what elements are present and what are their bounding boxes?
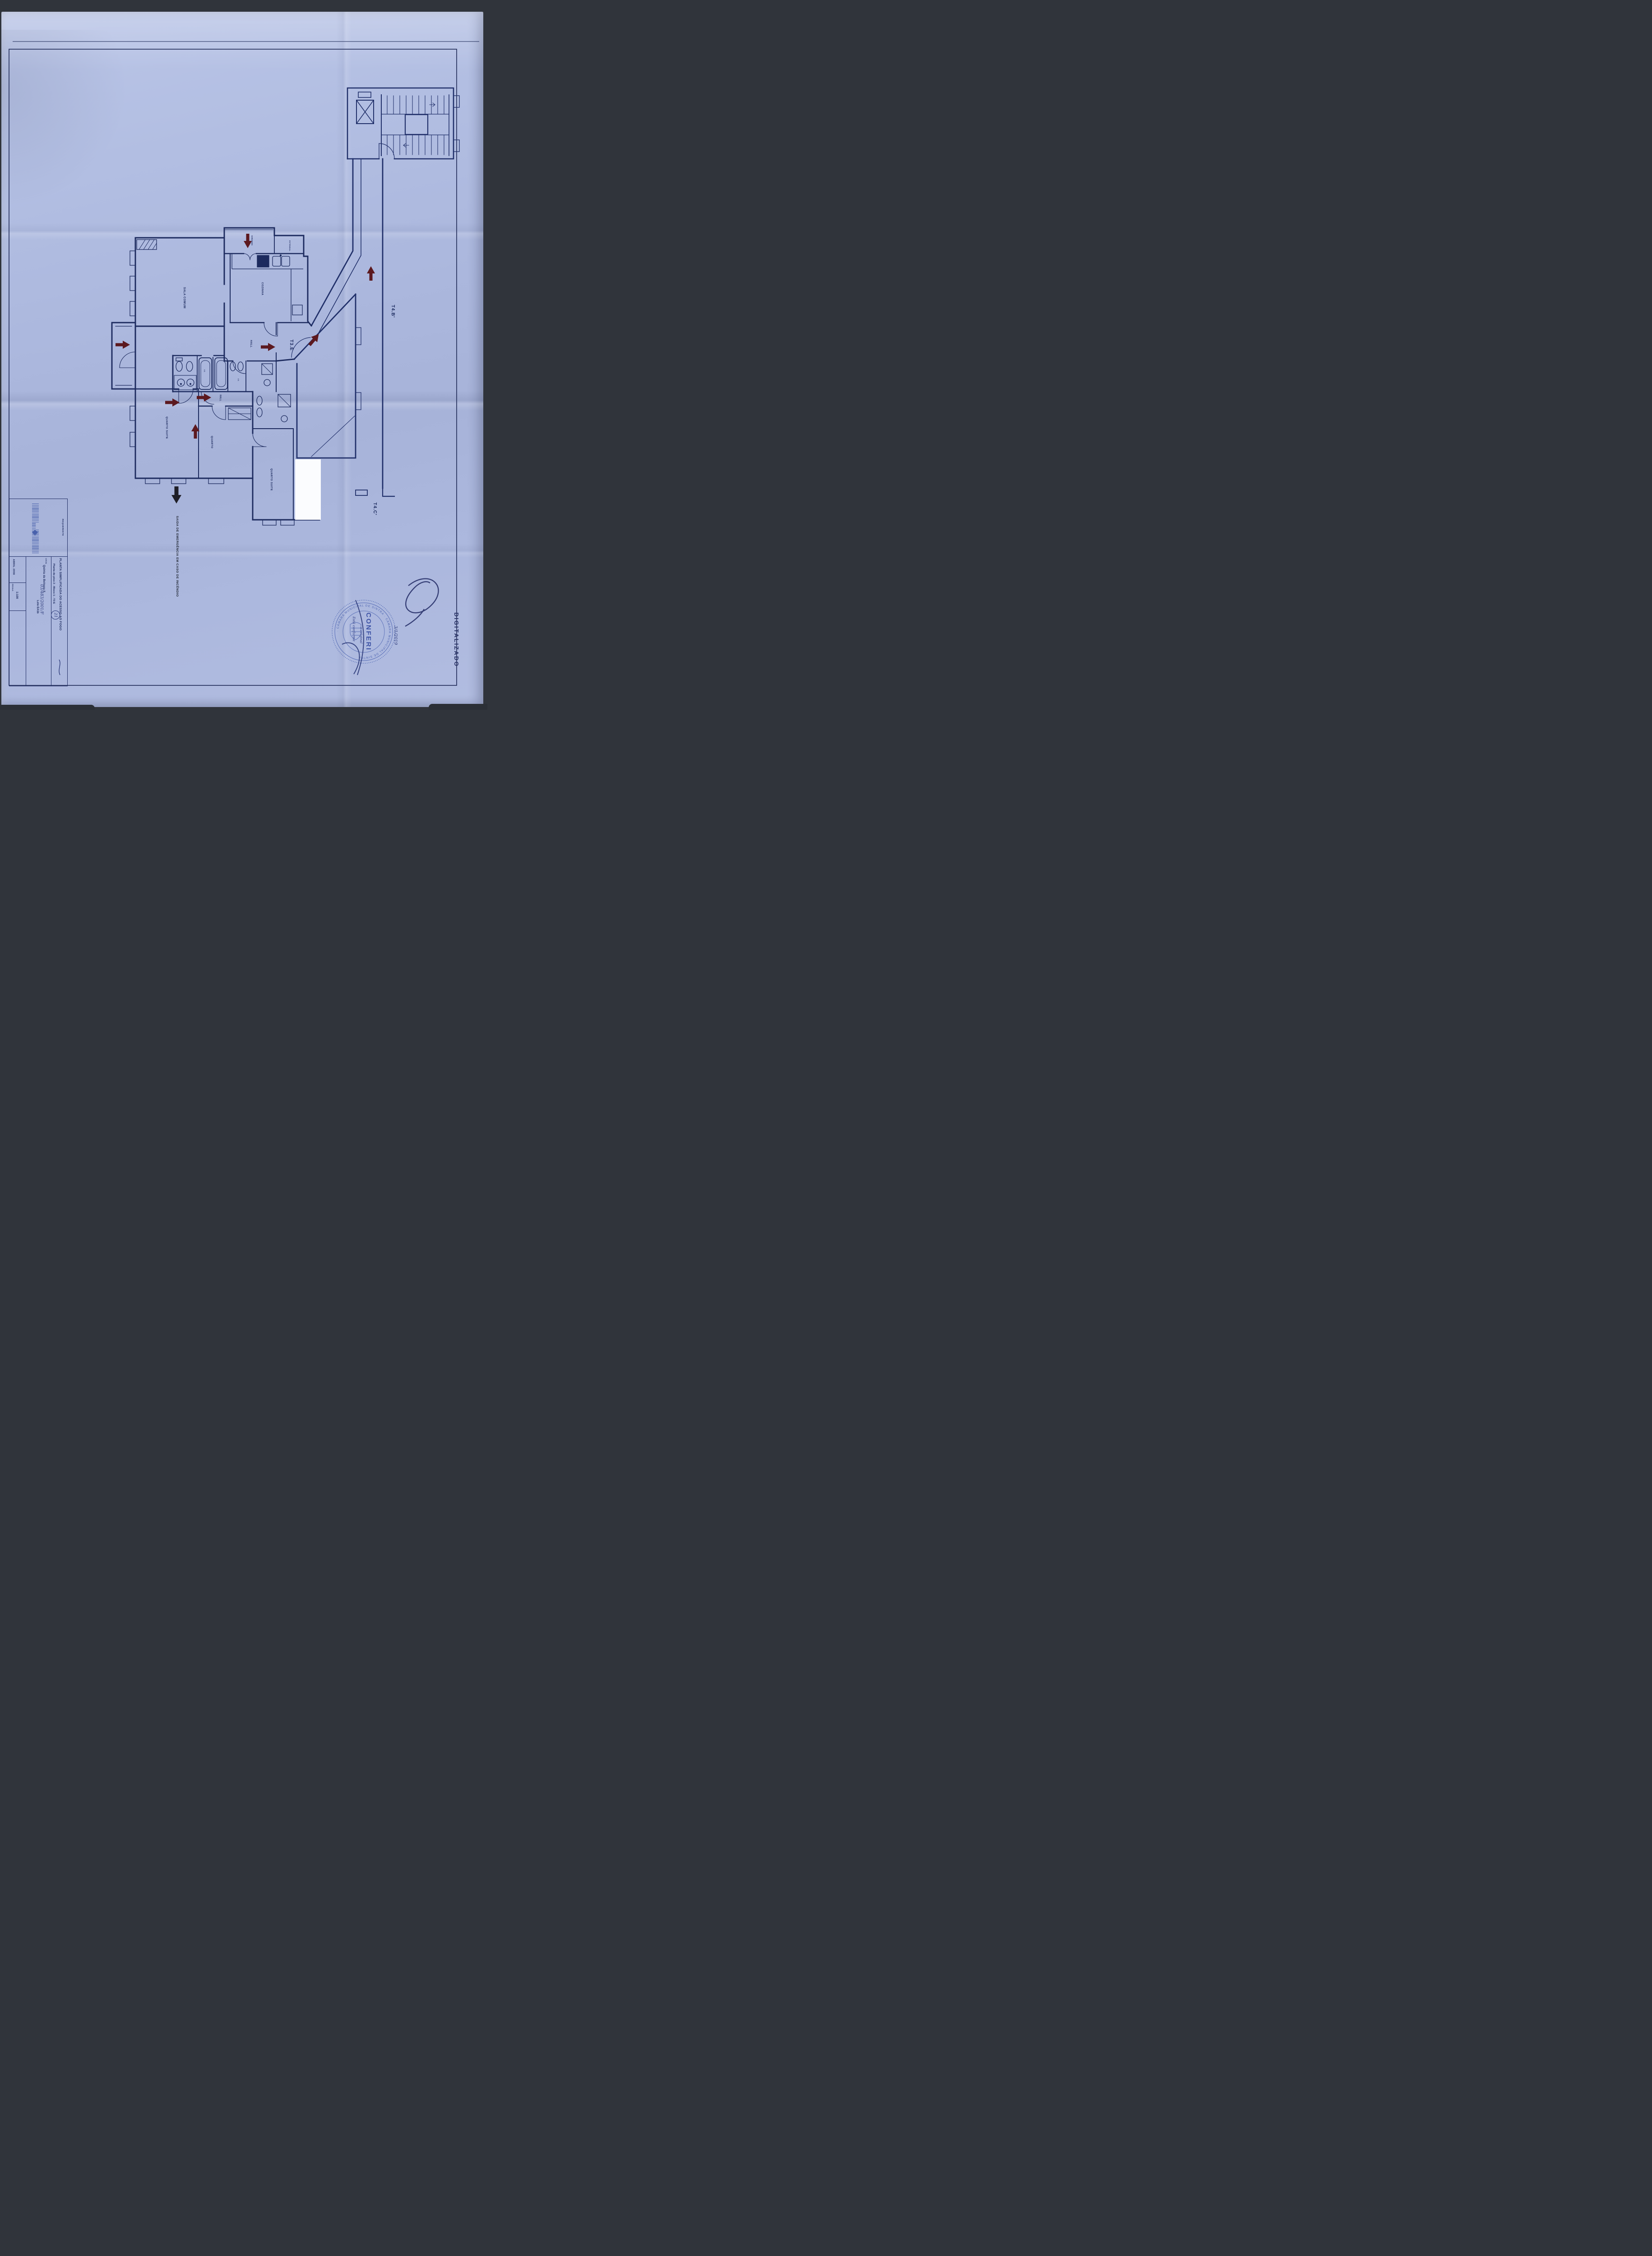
stairwell-elevator-block [347,88,459,159]
circled-number-value: 21 [53,613,58,618]
approval-signature [405,579,438,626]
stamp-note-line2: o original [359,627,363,644]
whiteout-patch [295,459,321,520]
arrow-emergency-exit [171,486,181,504]
arrow-exit-room [116,341,130,349]
label-is2: I.S. [237,379,239,381]
label-cozinha: COZINHA [261,282,264,296]
title-block-divider [9,582,26,583]
stamp-note-line1: Está conforme [352,616,356,642]
scanner-bed-corner [0,705,95,710]
label-quarto-suite1: QUARTO SUITE [165,416,168,439]
label-t4c: T4.C' [372,502,377,515]
label-varanda: VARANDA [251,236,253,246]
scanned-document-page: SALA COMUM COZINHA VARANDA ESTENDAL HALL… [0,0,487,710]
requerente-cell: REQUERENTE [9,499,67,556]
label-estendal: ESTENDAL [289,240,291,251]
drawing-date: ABRIL 2008 [12,559,15,575]
digitalizado-watermark: DIGITALIZADO [453,612,460,667]
balcony-hatch [137,240,157,250]
title-block-divider [51,556,51,686]
scale-label: ESCALA [12,584,14,591]
window-stubs [130,240,294,525]
kitchen-fixtures [232,254,303,321]
scanner-bed-corner [429,704,487,710]
floor-plan-drawing: SALA COMUM COZINHA VARANDA ESTENDAL HALL… [0,0,487,710]
label-is1: I.S. [204,370,205,372]
label-hall1: HALL [250,340,252,348]
title-block-divider [9,610,26,611]
label-quarto: QUARTO [210,436,213,448]
requerente-logo [32,504,39,553]
sheet-frame [9,42,479,685]
drawing-title: PLANTA SIMPLIFICADA DO ACESSO AO FOGO [59,558,62,630]
handwritten-circled-number: 21 [51,610,60,619]
common-corridor-walls [292,159,394,496]
label-sala-comum: SALA COMUM [183,287,186,308]
handwritten-process-ref: 03/483/2001/F [39,584,44,615]
apartment-walls [112,228,319,520]
arrow-right-hall2 [165,398,180,407]
scale-value: 1:100 [15,592,19,599]
title-block-divider [26,556,26,686]
arrow-right-hall [261,343,275,351]
label-unit-t3e: T3.E [289,339,294,351]
emergency-exit-note: SAIDA DE EMERGÊNCIA EM CASO DE INCÊNDIO [176,516,180,597]
stamp-word: CONFERI [365,613,372,651]
local-value-2: Lote EA1b [36,600,39,614]
title-block: REQUERENTE ABRIL 2008 ESCALA 1:100 LOCAL… [9,499,68,686]
bathroom-fixtures [174,358,291,422]
stamp-date-handwritten: 3/1/2019 [393,626,398,645]
municipal-stamp: · CÂMARA MUNICIPAL DE SINTRA · CÂMARA MU… [332,600,395,675]
arrow-down-varanda [244,234,252,248]
arrow-up-corridor [367,266,375,281]
local-label: LOCAL [45,558,47,564]
arrow-entry [306,332,322,348]
room-labels: SALA COMUM COZINHA VARANDA ESTENDAL HALL… [165,236,395,597]
label-hall2: HALL [219,395,222,402]
route-arrows [116,234,375,504]
title-block-divider [9,556,67,557]
drawing-subtitle: Planta do piso 2 - Bloco 1 - T3 E [52,564,55,604]
label-quarto-suite2: QUARTO SUITE [270,468,273,491]
label-t4b: T4.B' [390,305,395,318]
requerente-label: REQUERENTE [62,519,64,536]
